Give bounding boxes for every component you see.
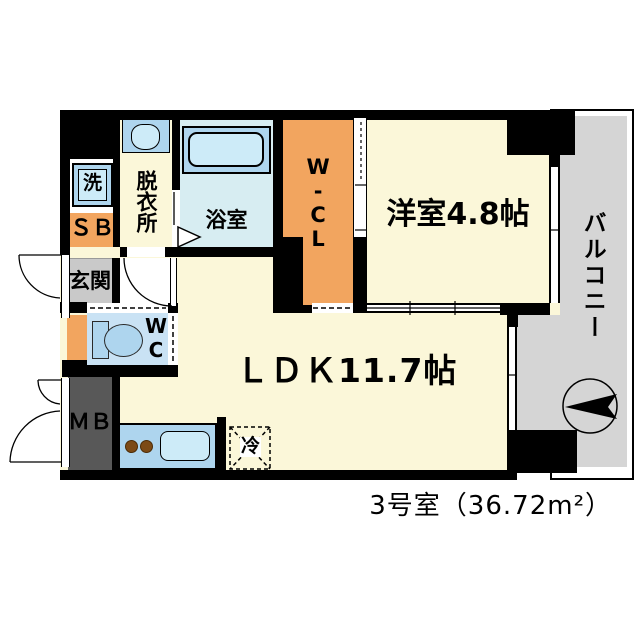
toilet-label: WC <box>145 314 166 362</box>
entrance-door-swing-arc-icon <box>19 255 60 298</box>
shoe-box-label: ＳＢ <box>70 217 113 240</box>
refrigerator-label: 冷 <box>240 437 261 457</box>
linework-overlay <box>0 0 640 640</box>
mb-upper-door-swing-arc-icon <box>38 380 60 404</box>
meter-box-label: ＭＢ <box>68 411 112 434</box>
walkin-closet-label: W-CL <box>307 155 329 251</box>
bathroom-label: 浴室 <box>180 209 273 231</box>
dressing-room-label: 脱衣所 <box>135 170 157 233</box>
caption-room-area: 3号室（36.72m²） <box>300 493 612 520</box>
hall-door-swing-arc-icon <box>124 258 172 306</box>
entrance-label: 玄関 <box>68 270 112 292</box>
ldk-label: ＬＤＫ11.7帖 <box>236 354 457 389</box>
floor-plan: 洗 ＳＢ 脱衣所 浴室 W-CL 洋室4.8帖 玄関 WC ＬＤＫ11.7帖 Ｍ… <box>0 0 640 640</box>
western-room-label: 洋室4.8帖 <box>367 199 549 231</box>
laundry-label: 洗 <box>72 174 113 194</box>
mb-lower-door-swing-arc-icon <box>10 411 60 462</box>
balcony-label: バルコニー <box>580 211 604 341</box>
compass-arrow-icon <box>565 394 617 419</box>
